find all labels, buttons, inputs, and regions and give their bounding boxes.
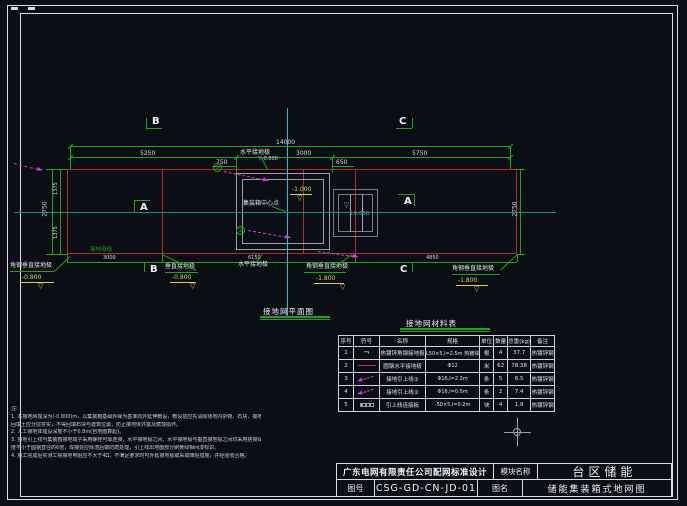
- registration-mark: [11, 7, 18, 10]
- note-line: 4. 施工完成后实测工频接地电阻应不大于4Ω，不满足要求时可外延接地极或采取降阻…: [11, 453, 261, 461]
- cell-remark: 热镀锌钢: [531, 347, 555, 360]
- dim-sub-right: 650: [336, 160, 347, 166]
- leader-underline: [304, 272, 346, 273]
- elevation-triangle-icon: ▽: [340, 284, 345, 291]
- elevation-underline: [456, 285, 488, 286]
- callout-1: ①: [213, 163, 222, 172]
- section-bracket: [144, 262, 145, 272]
- note-line: 2. 人工接地体埋设深度不小于0.8m(自地面算起)。: [11, 429, 261, 437]
- dim-right-total: 2750: [513, 201, 519, 216]
- dim-bot-c: 4850: [426, 256, 439, 261]
- module-name-label: 模块名称: [494, 464, 538, 480]
- cell-name: 引上线连接板: [380, 399, 426, 412]
- note-line: 度不小于圆钢直径的6倍，焊接处应除渣后做防腐处理，引上线出地面部分刷黄绿相间漆标…: [11, 445, 261, 453]
- elevation-triangle-icon: ▽: [190, 283, 195, 290]
- angle-steel-symbol-icon: ¬: [354, 347, 380, 360]
- col-spec: 规格: [426, 336, 480, 347]
- cell-qty: 62: [494, 360, 508, 373]
- cell-seq: 2: [339, 360, 354, 373]
- section-mark-a-right: A: [404, 197, 412, 207]
- dim-line: [70, 146, 510, 147]
- table-header-row: 序号 符号 名称 规格 单位 数量 总重(kg) 备注: [339, 336, 555, 347]
- section-mark-c-top: C: [399, 117, 406, 127]
- lead-arrow-symbol-icon: [354, 373, 380, 386]
- table-row: 2 圆钢水平接地极 Φ12 米 62 78.38 热镀锌钢: [339, 360, 555, 373]
- section-bracket: [134, 200, 135, 212]
- dim-ext: [517, 254, 525, 255]
- cell-remark: 热镀锌钢: [531, 360, 555, 373]
- section-mark-c-bottom: C: [400, 265, 407, 275]
- dim-ext: [46, 169, 67, 170]
- cell-weight: 7.4: [508, 386, 531, 399]
- section-bracket: [396, 128, 412, 129]
- elevation-triangle-icon: ▽: [474, 286, 479, 293]
- container-elevation: -1.000: [292, 187, 311, 193]
- leader-underline: [10, 271, 54, 272]
- col-remark: 备注: [531, 336, 555, 347]
- elevation-triangle-icon: ▽: [297, 195, 302, 202]
- label-top-elevation: ▽-0.800: [258, 157, 278, 162]
- col-weight: 总重(kg): [508, 336, 531, 347]
- drawing-no-label: 图号: [337, 480, 375, 496]
- cell-unit: 条: [480, 373, 494, 386]
- module-name-value: 台区储能: [538, 464, 671, 480]
- section-mark-b-bottom: B: [150, 265, 158, 275]
- cell-weight: 78.38: [508, 360, 531, 373]
- cell-unit: 根: [480, 347, 494, 360]
- leader-underline: [452, 274, 500, 275]
- cell-name: 圆钢水平接地极: [380, 360, 426, 373]
- lead-arrow-symbol-icon: [354, 386, 380, 399]
- cell-weight: 6.5: [508, 373, 531, 386]
- cell-seq: 4: [339, 386, 354, 399]
- note-line: 3. 接地引上线与集装箱接地端子采用螺栓可靠连接，水平接地极之间、水平接地极与垂…: [11, 437, 261, 445]
- elevation-underline: [20, 282, 54, 283]
- dim-line: [332, 166, 354, 167]
- plan-title-underline: [260, 316, 330, 320]
- table-row: 3 接地引上线① Φ16,l=2.2m 条 5 6.5 热镀锌钢: [339, 373, 555, 386]
- dim-left-a: 1375: [54, 182, 59, 195]
- cell-remark: 热镀锌钢: [531, 399, 555, 412]
- dim-ext: [517, 169, 525, 170]
- cell-spec: Φ12: [426, 360, 480, 373]
- section-bracket: [146, 118, 147, 128]
- dim-seg-a: 5250: [140, 151, 155, 157]
- title-block-row-1: 广东电网有限责任公司配网标准设计 模块名称 台区储能: [337, 464, 671, 480]
- elevation-corner-right: -1.800: [458, 278, 477, 284]
- dim-seg-b: 3000: [296, 151, 311, 157]
- dim-ext: [236, 157, 237, 173]
- crosshair-circle-icon: [513, 428, 521, 436]
- elevation-triangle-icon: ▽: [38, 283, 43, 290]
- cell-spec: Φ16,l=0.5m: [426, 386, 480, 399]
- section-bracket: [412, 262, 413, 272]
- label-horizontal-electrode-bottom: 水平接地极: [238, 262, 268, 268]
- leader-underline: [165, 272, 198, 273]
- label-angle-electrode-right: 角钢垂直接地极: [452, 266, 494, 272]
- col-seq: 序号: [339, 336, 354, 347]
- dim-ext: [56, 212, 67, 213]
- col-unit: 单位: [480, 336, 494, 347]
- callout-2: ②: [236, 226, 245, 235]
- col-symbol: 符号: [354, 336, 380, 347]
- table-row: 4 接地引上线② Φ16,l=0.5m 条 2 7.4 热镀锌钢: [339, 386, 555, 399]
- red-line-symbol-icon: [354, 360, 380, 373]
- dim-line: [520, 169, 521, 254]
- cad-drawing-sheet: ▽ ±0.000 14000 5250 3000 5750 750 650 27…: [0, 0, 687, 506]
- section-bracket: [144, 262, 160, 263]
- cell-qty: 5: [494, 373, 508, 386]
- pad-elevation-triangle-icon: ▽: [344, 202, 349, 209]
- dim-line: [67, 262, 517, 263]
- materials-title-underline: [400, 328, 490, 332]
- dim-seg-c: 5750: [412, 151, 427, 157]
- cell-weight: 37.7: [508, 347, 531, 360]
- plate-symbol-icon: [354, 399, 380, 412]
- materials-table: 序号 符号 名称 规格 单位 数量 总重(kg) 备注 1 ¬ 热镀锌角钢接地极…: [338, 335, 555, 412]
- elevation-mid: -0.800: [172, 275, 191, 281]
- cell-name: 接地引上线①: [380, 373, 426, 386]
- label-angle-electrode-left: 角钢垂直接地极: [10, 263, 52, 269]
- dim-line: [70, 157, 510, 158]
- cell-weight: 1.8: [508, 399, 531, 412]
- top-elevation-value: -0.800: [262, 156, 278, 162]
- dim-left-b: 1375: [54, 226, 59, 239]
- cell-remark: 热镀锌钢: [531, 386, 555, 399]
- label-angle-electrode-center: 角钢垂直接地极: [306, 264, 348, 270]
- cell-name: 接地引上线②: [380, 386, 426, 399]
- company-name: 广东电网有限责任公司配网标准设计: [337, 464, 494, 480]
- cell-seq: 3: [339, 373, 354, 386]
- cell-unit: 块: [480, 399, 494, 412]
- section-bracket: [398, 194, 414, 195]
- note-line: 1. 本接地网埋深为(-0.800)m，以集装箱基础外缘为基准向外延伸敷设，敷设…: [11, 414, 261, 422]
- section-bracket: [414, 194, 415, 206]
- section-mark-b-top: B: [152, 117, 160, 127]
- cell-seq: 1: [339, 347, 354, 360]
- notes-block: 注: 1. 本接地网埋深为(-0.800)m，以集装箱基础外缘为基准向外延伸敷设…: [11, 406, 261, 460]
- col-name: 名称: [380, 336, 426, 347]
- section-bracket: [396, 262, 412, 263]
- table-row: 1 ¬ 热镀锌角钢接地极 L50×5,l=2.5m 热镀锌 根 4 37.7 热…: [339, 347, 555, 360]
- section-bracket: [146, 128, 162, 129]
- cell-seq: 5: [339, 399, 354, 412]
- title-block-row-2: 图号 CSG-GD-CN-JD-01 图名 储能集装箱式地网图: [337, 480, 671, 496]
- cell-unit: 米: [480, 360, 494, 373]
- cell-spec: -50×5,l=0.2m: [426, 399, 480, 412]
- elevation-corner-left: -0.800: [22, 275, 41, 281]
- cell-spec: Φ16,l=2.2m: [426, 373, 480, 386]
- title-block: 广东电网有限责任公司配网标准设计 模块名称 台区储能 图号 CSG-GD-CN-…: [336, 463, 672, 497]
- drawing-name-value: 储能集装箱式地网图: [523, 480, 671, 496]
- table-row: 5 引上线连接板 -50×5,l=0.2m 块 4 1.8 热镀锌钢: [339, 399, 555, 412]
- cell-qty: 4: [494, 399, 508, 412]
- dim-bot-a: 3000: [103, 256, 116, 261]
- elevation-center: -1.800: [316, 276, 335, 282]
- dim-ext: [46, 254, 67, 255]
- drawing-name-label: 图名: [478, 480, 523, 496]
- col-qty: 数量: [494, 336, 508, 347]
- note-line: 回填土应分层夯实，不得回填石块与建筑垃圾，防止接地体外露及腐蚀损坏。: [11, 422, 261, 430]
- notes-title: 注:: [11, 406, 261, 414]
- label-bus: 接地母线: [90, 248, 112, 254]
- cell-remark: 热镀锌钢: [531, 373, 555, 386]
- cell-qty: 4: [494, 347, 508, 360]
- drawing-no-value: CSG-GD-CN-JD-01: [375, 480, 478, 496]
- dim-left-total: 2750: [43, 201, 49, 216]
- cell-name: 热镀锌角钢接地极: [380, 347, 426, 360]
- section-bracket: [134, 200, 150, 201]
- registration-mark: [28, 7, 35, 10]
- cell-spec: L50×5,l=2.5m 热镀锌: [426, 347, 480, 360]
- dim-top-total: 14000: [276, 140, 295, 146]
- dim-ext: [332, 157, 333, 173]
- section-mark-a-left: A: [140, 203, 148, 213]
- cell-qty: 2: [494, 386, 508, 399]
- section-bracket: [412, 118, 413, 128]
- cell-unit: 条: [480, 386, 494, 399]
